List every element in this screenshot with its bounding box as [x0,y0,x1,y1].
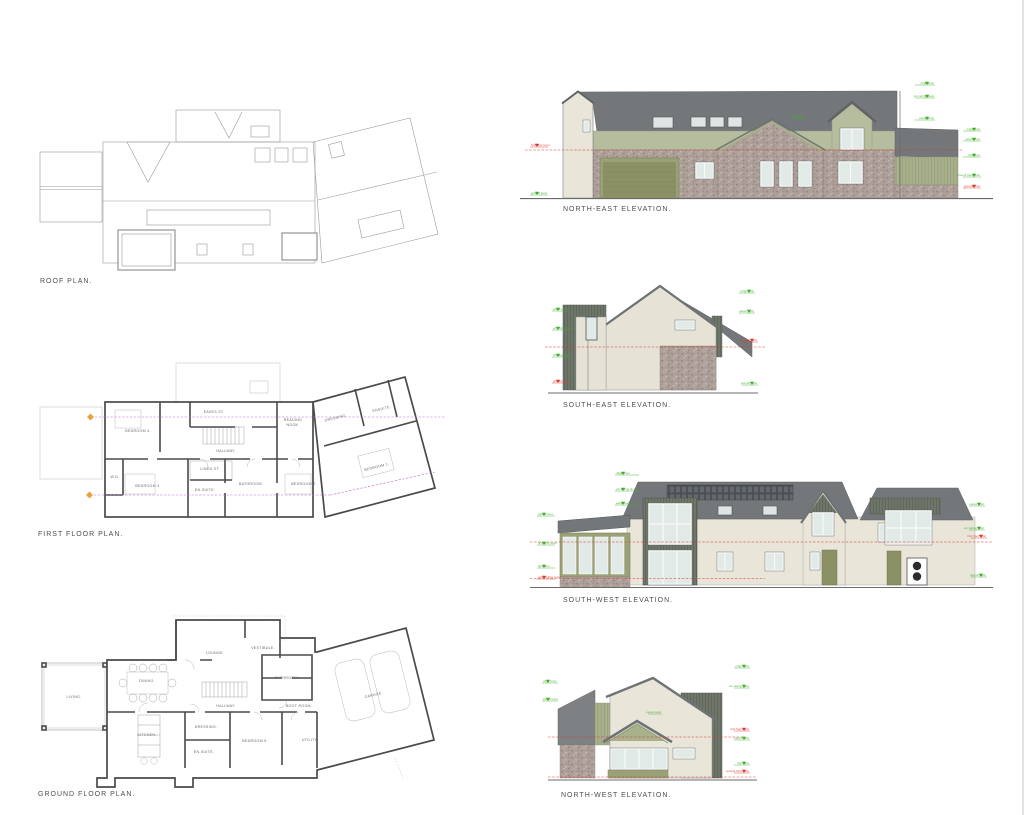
svg-text:ridge level: ridge level [741,289,755,293]
svg-text:HALLWAY.: HALLWAY. [216,704,235,708]
svg-text:HALLWAY.: HALLWAY. [216,449,235,453]
se-building [545,286,765,393]
svg-text:ground floor level: ground floor level [957,173,980,177]
svg-text:BEDROOM 3.: BEDROOM 3. [135,484,161,488]
svg-text:W.D.: W.D. [111,475,120,479]
sw-building [530,482,993,588]
heat-pump-unit [907,558,927,585]
first-floor-plan-drawing: BEDROOM 4. EAVES ST. READING NOOK. DRESS… [30,362,455,530]
svg-text:u/s ceiling level: u/s ceiling level [616,487,636,491]
svg-text:first floor level: first floor level [967,534,986,538]
svg-text:eaves level: eaves level [969,502,984,506]
ground-floor-plan-title: GROUND FLOOR PLAN. [38,791,135,798]
sw-glazed-tower [643,498,697,585]
ground-floor-plan-drawing: LIVING. DINING. KITCHEN. LOUNGE. VESTIBU… [35,612,455,797]
svg-text:BEDROOM 5.: BEDROOM 5. [242,739,268,743]
svg-text:LIVING.: LIVING. [67,695,82,699]
svg-text:EN-SUITE.: EN-SUITE. [194,750,214,754]
svg-text:BEDROOM 2.: BEDROOM 2. [291,482,317,486]
svg-text:BEDROOM 4.: BEDROOM 4. [125,429,151,433]
svg-text:ground level: ground level [741,381,757,385]
svg-text:eaves level: eaves level [965,137,980,141]
first-floor-geometry [40,363,445,517]
ne-right-wing [895,91,958,198]
svg-text:ground floor level: ground floor level [726,769,749,773]
svg-text:first floor level: first floor level [531,143,550,147]
svg-text:ground floor level: ground floor level [538,575,561,579]
svg-text:EAVES ST.: EAVES ST. [204,410,225,414]
svg-text:KITCHEN.: KITCHEN. [137,733,156,737]
drawing-sheet: ROOF PLAN. BEDROOM 4. EAVES ST. [0,0,1024,815]
svg-text:first floor level: first floor level [730,727,749,731]
roof-plan-geometry [40,110,438,270]
svg-text:eaves level: eaves level [789,114,804,118]
svg-text:ridge level: ridge level [967,127,981,131]
svg-text:LINEN ST.: LINEN ST. [200,467,219,471]
svg-text:LOUNGE.: LOUNGE. [206,651,224,655]
nw-building [548,678,757,780]
svg-text:eaves level: eaves level [646,710,661,714]
svg-text:eaves level: eaves level [919,116,934,120]
svg-text:ridge level: ridge level [736,664,750,668]
svg-text:eaves level: eaves level [553,307,568,311]
svg-text:dpc level: dpc level [538,564,550,568]
svg-text:DRESSING.: DRESSING. [195,725,217,729]
svg-text:dpc level: dpc level [968,153,980,157]
svg-text:u/s ceiling level: u/s ceiling level [729,684,749,688]
solar-array-plan [147,210,270,225]
svg-text:eaves level: eaves level [734,736,749,740]
svg-text:VESTIBULE.: VESTIBULE. [251,646,275,650]
svg-text:eaves level: eaves level [739,309,754,313]
svg-text:first floor level: first floor level [738,338,757,342]
svg-text:BOOT ROOM.: BOOT ROOM. [286,704,312,708]
sw-sunroom [558,515,630,587]
svg-text:u/s ceiling level: u/s ceiling level [914,94,934,98]
svg-text:BATHROOM.: BATHROOM. [239,482,263,486]
south-west-elevation-drawing: ridge level u/s ceiling level eaves leve… [525,463,1000,598]
se-elevation-title: SOUTH-EAST ELEVATION. [563,402,671,409]
svg-text:EN-SUITE.: EN-SUITE. [195,488,215,492]
svg-text:u/s ceiling level: u/s ceiling level [553,326,573,330]
svg-text:dpc level: dpc level [737,761,749,765]
south-east-elevation-drawing: eaves level u/s ceiling level first floo… [540,282,770,402]
ne-garage-door [600,158,679,198]
ground-floor-geometry [42,616,434,787]
nw-elevation-title: NORTH-WEST ELEVATION. [561,792,671,799]
svg-text:eaves level: eaves level [538,512,553,516]
ne-elevation-title: NORTH-EAST ELEVATION. [563,206,671,213]
ne-left-gable [563,92,593,198]
svg-text:NOOK.: NOOK. [286,423,299,427]
svg-text:ground level: ground level [964,184,980,188]
roof-plan-drawing [35,95,450,285]
svg-text:first floor level: first floor level [553,353,572,357]
sw-elevation-title: SOUTH-WEST ELEVATION. [563,597,673,604]
svg-text:UTILITY.: UTILITY. [302,738,318,742]
svg-text:ridge level: ridge level [543,679,557,683]
svg-text:ground level: ground level [531,191,547,195]
svg-text:ground level: ground level [970,573,986,577]
north-west-elevation-drawing: ridge level eaves level ridge level u/s … [540,658,770,793]
svg-text:READING: READING [284,418,302,422]
north-east-elevation-drawing: ridge level u/s ceiling level eaves leve… [515,78,1015,213]
svg-text:DINING.: DINING. [139,679,155,683]
svg-text:ridge level: ridge level [616,471,630,475]
svg-text:first floor level: first floor level [538,541,557,545]
svg-text:ridge level: ridge level [921,81,935,85]
svg-text:u/s ceiling level: u/s ceiling level [964,526,984,530]
svg-text:eaves level: eaves level [616,501,631,505]
roof-plan-title: ROOF PLAN. [40,278,92,285]
first-floor-plan-title: FIRST FLOOR PLAN. [38,531,123,538]
svg-text:BATHROOM.: BATHROOM. [275,676,299,680]
ne-building [520,91,993,199]
svg-text:ground level: ground level [553,379,569,383]
svg-text:eaves level: eaves level [543,697,558,701]
